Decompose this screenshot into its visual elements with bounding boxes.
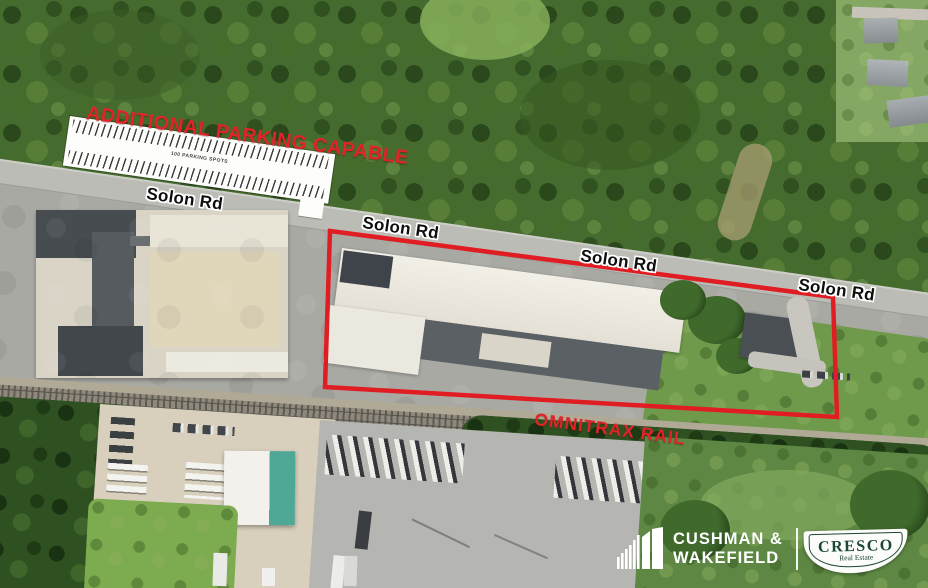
- cushman-wakefield-logo: CUSHMAN & WAKEFIELD: [617, 526, 793, 572]
- cw-wordmark-line2: WAKEFIELD: [673, 549, 783, 568]
- cw-building-icon: [617, 527, 665, 569]
- cw-wordmark-line1: CUSHMAN &: [673, 530, 783, 549]
- aerial-site-map: 100 PARKING SPOTS ADDITIONAL PARKING CAP…: [0, 0, 928, 588]
- cresco-wordmark: CRESCO: [818, 538, 894, 555]
- logo-divider: [796, 528, 798, 570]
- property-boundary-outline: [0, 0, 928, 588]
- cresco-tagline: Real Estate: [839, 553, 873, 562]
- cw-wordmark: CUSHMAN & WAKEFIELD: [673, 530, 783, 568]
